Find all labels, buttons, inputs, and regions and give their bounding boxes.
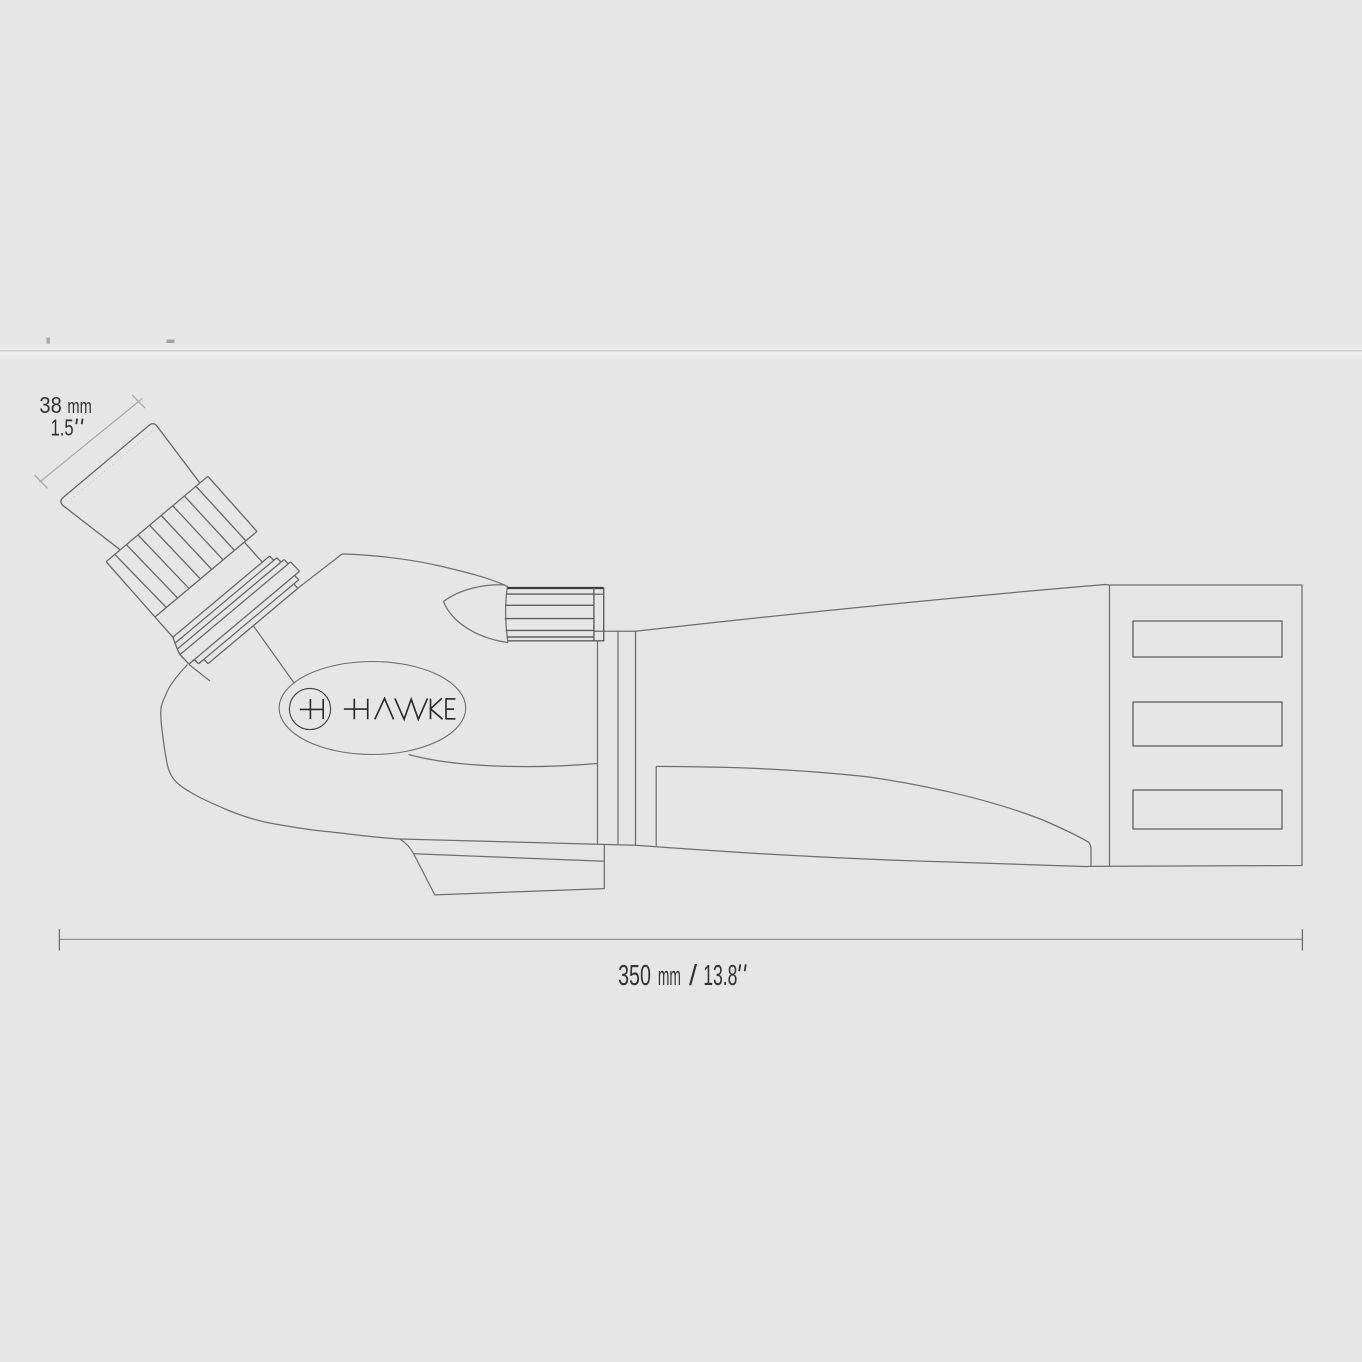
svg-text:1.5: 1.5 [51, 415, 74, 441]
svg-text:350: 350 [618, 960, 651, 992]
svg-text:mm: mm [658, 963, 681, 991]
svg-text:13.8: 13.8 [703, 960, 737, 992]
svg-text:/: / [689, 960, 698, 992]
